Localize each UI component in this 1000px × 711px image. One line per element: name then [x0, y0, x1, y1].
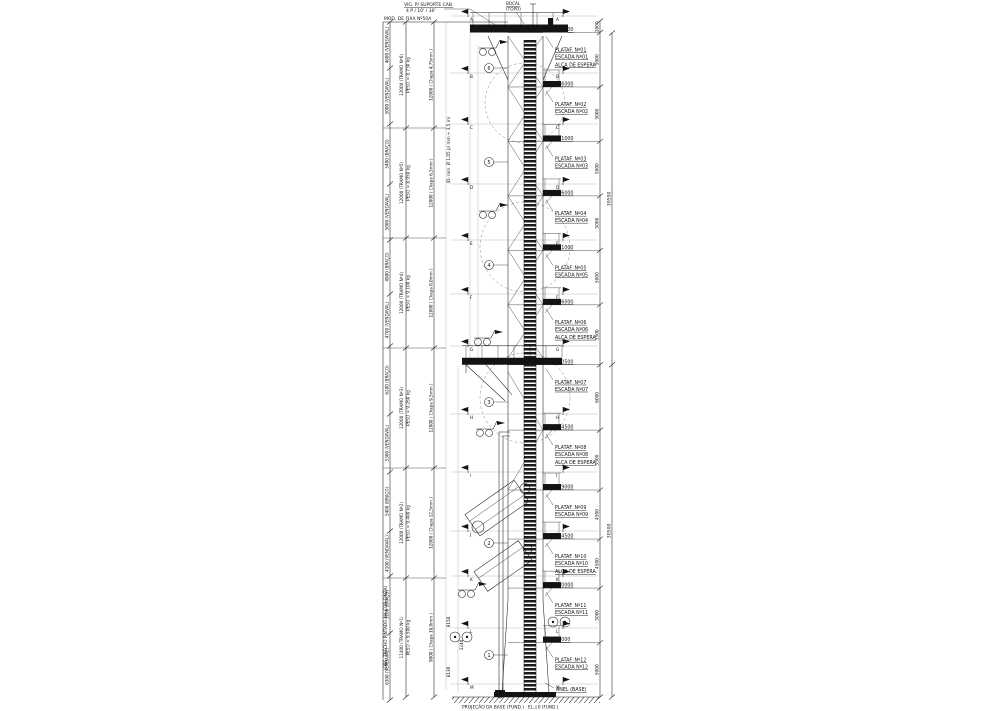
base-ring-label: ANEL (BASE) — [556, 687, 587, 693]
platform-deck — [543, 582, 561, 588]
ladder-label: ESCADA Nº09 — [555, 512, 588, 518]
dimension-value: 11400 (TRAMO Nº1) — [399, 616, 404, 658]
platform-deck — [543, 135, 561, 141]
detail-circle-number: 2 — [487, 541, 490, 547]
platform-label: PLATAF. Nº05 — [555, 265, 586, 271]
section-flag-letter: D — [556, 185, 559, 190]
platform-label: PLATAF. Nº01 — [555, 48, 586, 54]
side-rotated-note: (OBS: TRECHO PINTADO NA COR CINZA) — [383, 586, 388, 671]
espera-lug-label: ALÇA DE ESPERA — [555, 335, 596, 341]
section-flag-letter: I — [556, 473, 557, 478]
trunnion-center — [454, 636, 456, 638]
section-flag-letter: E — [556, 241, 559, 246]
dimension-value: 30500 — [607, 523, 613, 538]
platform-deck — [543, 637, 561, 643]
detail-circle-number: 6 — [487, 66, 490, 72]
ladder-label: ESCADA Nº04 — [555, 218, 588, 224]
dimension-value: PESO ≈ 8.950 kg — [406, 165, 411, 201]
dimension-value: 6000 — [595, 392, 601, 403]
dimension-value: PESO ≈ 9.260 kg — [406, 390, 411, 426]
dimension-value: 4500 — [595, 558, 601, 569]
espera-lug-label: ALÇA DE ESPERA — [555, 63, 596, 69]
dimension-value: 12000 ( Chapa 6,3mm ) — [429, 158, 434, 207]
section-flag-letter: A — [556, 17, 559, 22]
inner-dimension-value: 8130 — [446, 666, 451, 677]
mid-rotated-note: (D- mín. Ø 1,05 p/ mm + 3,5 m) — [446, 116, 451, 183]
ladder-label: ESCADA Nº02 — [555, 109, 588, 115]
section-flag-letter: D — [470, 185, 473, 190]
dimension-value: PESO ≈ 8.730 kg — [406, 57, 411, 93]
section-flag-letter: J — [555, 532, 557, 537]
section-flag-letter: G — [556, 347, 559, 352]
dimension-value: 12000 (TRAMO Nº4) — [399, 272, 404, 314]
ladder-label: ESCADA Nº06 — [555, 327, 588, 333]
top-note-line1: VIG. P/ SUPORTE CAB. — [404, 2, 453, 8]
dimension-value: 5400 (BRAÇO) — [385, 486, 390, 516]
detail-circle-number: 1 — [487, 653, 490, 659]
section-flag-letter: J — [469, 532, 471, 537]
section-flag-letter: C — [556, 125, 559, 130]
dimension-value: PESO ≈ 9.100 kg — [406, 275, 411, 311]
platform-label: PLATAF. Nº04 — [555, 211, 586, 217]
bottom-note: PROJEÇÃO DA BASE (FUND.) — [462, 704, 524, 711]
ladder-label: ESCADA Nº08 — [555, 452, 588, 458]
espera-lug-label: ALÇA DE ESPERA — [555, 569, 596, 575]
platform-label: PLATAF. Nº07 — [555, 380, 586, 386]
dimension-value: 12000 ( Chapa 12,5mm ) — [429, 497, 434, 549]
drawing-sheet: 2000500050005000500050005500600055004500… — [0, 0, 1000, 711]
section-flag-letter: B — [556, 74, 559, 79]
section-flag-letter: C — [470, 125, 473, 130]
ladder-label: ESCADA Nº03 — [555, 163, 588, 169]
ladder-label: ESCADA Nº05 — [555, 272, 588, 278]
dimension-value: 4100 (VENDAVAL) — [385, 535, 390, 572]
base-elevation-label: EL.±0 (FUND.) — [528, 705, 559, 710]
top-center-note-line1: BOCAL — [506, 1, 521, 6]
tower-elevation-drawing: 2000500050005000500050005500600055004500… — [0, 0, 1000, 711]
platform-deck — [543, 424, 561, 430]
dimension-value: 30500 — [607, 191, 613, 206]
section-flag-letter: I — [470, 473, 471, 478]
platform-deck — [543, 81, 561, 87]
section-flag-letter: H — [556, 415, 559, 420]
section-flag-letter: K — [556, 577, 559, 582]
inner-dimension-value: 6150 — [446, 616, 451, 627]
ladder-label: ESCADA Nº10 — [555, 561, 588, 567]
dimension-value: 2000 — [595, 21, 601, 32]
section-flag-letter: E — [470, 241, 473, 246]
platform-label: PLATAF. Nº08 — [555, 445, 586, 451]
dimension-value: 4700 (VENDAVAL) — [385, 301, 390, 338]
ladder-rungs — [524, 40, 536, 693]
dimension-value: PESO ≈ 9.400 kg — [406, 505, 411, 541]
dimension-value: 5400 (BRAÇO) — [385, 139, 390, 169]
trunnion-center — [466, 636, 468, 638]
dimension-value: 5000 — [595, 272, 601, 283]
platform-label: PLATAF. Nº06 — [555, 320, 586, 326]
dimension-value: 5000 — [595, 610, 601, 621]
dimension-value: 5000 (VENDAVAL) — [385, 193, 390, 230]
dimension-value: 5000 — [595, 108, 601, 119]
section-flag-letter: A — [470, 17, 473, 22]
section-flag-letter: M — [470, 685, 474, 690]
sheet-background — [0, 0, 1000, 711]
base-ring — [494, 692, 556, 697]
dimension-value: 4900 (BRAÇO) — [385, 252, 390, 282]
platform-label: PLATAF. Nº11 — [555, 603, 586, 609]
section-flag-letter: H — [470, 415, 473, 420]
platform-label: PLATAF. Nº09 — [555, 505, 586, 511]
ladder-label: ESCADA Nº07 — [555, 387, 588, 393]
inner-dimension-value: 1240 — [459, 639, 464, 650]
ladder-label: ESCADA Nº01 — [555, 55, 588, 61]
dimension-value: 5000 — [595, 664, 601, 675]
platform-deck — [543, 533, 561, 539]
bracket-platform-deck — [462, 358, 562, 365]
platform-label: PLATAF. Nº10 — [555, 554, 586, 560]
dimension-value: PESO ≈ 9.500 kg — [406, 619, 411, 655]
platform-label: PLATAF. Nº12 — [555, 658, 586, 664]
dimension-value: 12000 (TRAMO Nº6) — [399, 54, 404, 96]
ground-hatch — [452, 697, 600, 703]
platform-label: PLATAF. Nº03 — [555, 156, 586, 162]
dimension-value: 4500 — [595, 509, 601, 520]
dimension-value: 5000 — [595, 163, 601, 174]
dimension-value: 6200 (BRAÇO) — [385, 365, 390, 395]
ladder-cage — [524, 40, 536, 693]
top-left-header: MOD. DE FIXA Nº50A — [384, 16, 432, 22]
dimension-value: 9000 ( Chapa 16,0mm ) — [429, 613, 434, 662]
section-flag-letter: K — [470, 577, 473, 582]
dimension-value: 12000 (TRAMO Nº2) — [399, 502, 404, 544]
dimension-value: 12000 ( Chapa 8,0mm ) — [429, 268, 434, 317]
dimension-value: 4600 (VENDAVAL) — [385, 26, 390, 63]
detail-circle-number: 5 — [487, 160, 490, 166]
section-flag-letter: G — [470, 347, 473, 352]
dimension-value: 5000 (VENDAVAL) — [385, 77, 390, 114]
top-platform-deck — [470, 25, 568, 33]
top-center-note-line2: (TOPO) — [506, 7, 521, 12]
dimension-value: 12000 (TRAMO Nº5) — [399, 162, 404, 204]
dimension-value: 12000 (TRAMO Nº3) — [399, 387, 404, 429]
espera-lug-label: ALÇA DE ESPERA — [555, 460, 596, 466]
dimension-value: 5300 (VENDAVAL) — [385, 424, 390, 461]
platform-label: PLATAF. Nº02 — [555, 102, 586, 108]
dimension-value: 12000 ( Chapa 4,75mm ) — [429, 49, 434, 101]
top-note-line2: 4 P / 10' / 30' — [406, 8, 436, 14]
detail-circle-number: 3 — [487, 400, 490, 406]
dimension-value: 5000 — [595, 217, 601, 228]
platform-deck — [543, 484, 561, 490]
trunnion-center — [552, 621, 554, 623]
platform-deck — [543, 190, 561, 196]
detail-circle-number: 4 — [487, 263, 490, 269]
ladder-label: ESCADA Nº12 — [555, 665, 588, 671]
ladder-label: ESCADA Nº11 — [555, 610, 588, 616]
section-flag-letter: B — [470, 74, 473, 79]
dimension-value: 12000 ( Chapa 9,5mm ) — [429, 383, 434, 432]
